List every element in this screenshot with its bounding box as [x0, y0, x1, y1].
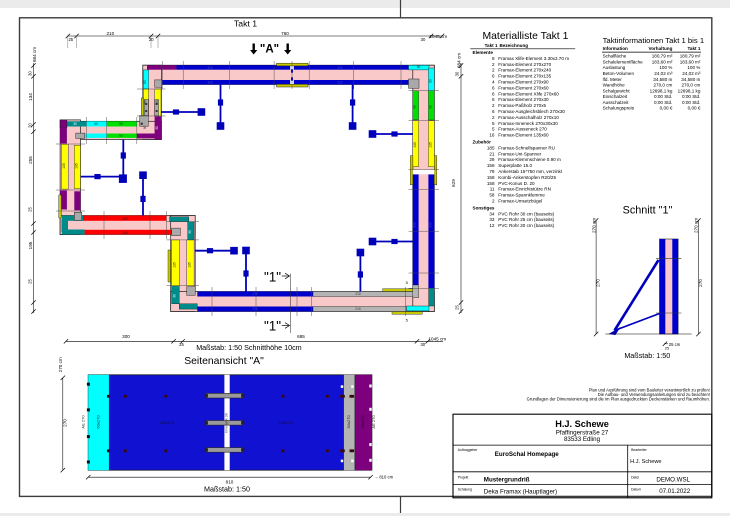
svg-text:180,79 m²: 180,79 m²	[652, 54, 673, 59]
svg-text:185: 185	[487, 145, 495, 150]
svg-text:684 cm: 684 cm	[456, 53, 461, 68]
svg-text:5: 5	[492, 127, 495, 132]
svg-text:30: 30	[454, 71, 459, 76]
svg-text:Framax-Element 135x60: Framax-Element 135x60	[498, 133, 549, 138]
svg-text:Framax-Element 270x60: Framax-Element 270x60	[498, 85, 549, 90]
svg-text:25: 25	[665, 347, 669, 351]
svg-text:→ 810 cm: → 810 cm	[374, 475, 394, 480]
svg-text:30x270: 30x270	[346, 415, 351, 429]
svg-text:2: 2	[492, 103, 495, 108]
svg-text:6: 6	[492, 109, 495, 114]
svg-text:300: 300	[122, 334, 130, 339]
svg-text:0:00 Std.: 0:00 Std.	[682, 100, 700, 105]
svg-text:270,0 cm: 270,0 cm	[681, 83, 700, 88]
svg-text:Datum: Datum	[631, 487, 641, 491]
svg-text:Ausschalzeit: Ausschalzeit	[603, 100, 630, 105]
svg-text:330: 330	[428, 222, 432, 228]
svg-text:Framax-Element Xlife 270x60: Framax-Element Xlife 270x60	[498, 91, 559, 96]
svg-text:29: 29	[489, 157, 495, 162]
svg-text:25: 25	[28, 207, 33, 212]
svg-text:183,60 m²: 183,60 m²	[680, 60, 701, 65]
svg-text:90x270: 90x270	[360, 415, 365, 429]
svg-text:60x270: 60x270	[96, 415, 101, 429]
svg-text:Wandhöhe: Wandhöhe	[603, 83, 625, 88]
svg-text:"A": "A"	[260, 44, 279, 56]
svg-text:34: 34	[489, 211, 495, 216]
svg-text:Framax-Einrichtstütze RN: Framax-Einrichtstütze RN	[498, 187, 551, 192]
svg-text:25: 25	[68, 37, 73, 42]
svg-text:270 cm: 270 cm	[694, 218, 699, 233]
svg-text:Schnitt "1": Schnitt "1"	[623, 205, 673, 217]
svg-text:6: 6	[492, 74, 495, 79]
svg-text:Schalelementfläche: Schalelementfläche	[603, 60, 644, 65]
svg-text:90: 90	[143, 100, 147, 104]
svg-text:12698,1 kg: 12698,1 kg	[678, 88, 701, 93]
svg-text:34,580 m: 34,580 m	[681, 77, 700, 82]
svg-text:135: 135	[413, 142, 417, 148]
svg-text:20: 20	[149, 37, 154, 42]
svg-text:1045 cm: 1045 cm	[429, 337, 447, 342]
svg-text:330: 330	[207, 81, 213, 85]
svg-text:760: 760	[281, 31, 289, 36]
svg-text:Maßstab: 1:50: Maßstab: 1:50	[204, 485, 250, 494]
svg-text:Grundlagen der Dimensionierung: Grundlagen der Dimensionierung sind die …	[527, 397, 710, 402]
svg-text:330: 330	[337, 81, 343, 85]
svg-text:24,02 m³: 24,02 m³	[654, 71, 673, 76]
svg-text:Seitenansicht "A": Seitenansicht "A"	[184, 356, 264, 367]
svg-text:24,02 m³: 24,02 m³	[682, 71, 701, 76]
svg-text:Mustergrundriß: Mustergrundriß	[484, 476, 530, 483]
svg-text:Maßstab: 1:50: Maßstab: 1:50	[624, 351, 670, 360]
svg-text:0:00 Std.: 0:00 Std.	[654, 100, 672, 105]
svg-text:270: 270	[596, 279, 601, 287]
svg-text:6: 6	[492, 91, 495, 96]
svg-text:H.J. Schewe: H.J. Schewe	[555, 419, 609, 429]
svg-text:20: 20	[28, 123, 33, 128]
svg-text:Auslastung: Auslastung	[603, 65, 626, 70]
svg-text:Takt 1: Takt 1	[234, 19, 257, 29]
svg-text:83533 Edling: 83533 Edling	[564, 436, 601, 443]
svg-text:30: 30	[420, 342, 425, 347]
svg-text:PVC-Konus D. 20: PVC-Konus D. 20	[498, 181, 535, 186]
svg-text:AE 270: AE 270	[81, 415, 86, 429]
svg-text:135x270: 135x270	[278, 420, 294, 425]
svg-text:90: 90	[119, 134, 123, 138]
svg-text:270,0 cm: 270,0 cm	[653, 83, 672, 88]
svg-text:210: 210	[355, 292, 361, 296]
svg-text:Framax-Element 270x270: Framax-Element 270x270	[498, 62, 551, 67]
svg-text:25: 25	[179, 342, 184, 347]
svg-text:Materialliste Takt 1: Materialliste Takt 1	[483, 31, 569, 42]
svg-text:135: 135	[173, 262, 177, 268]
svg-text:135: 135	[429, 142, 433, 148]
svg-text:H.J. Schewe: H.J. Schewe	[630, 459, 661, 465]
svg-text:270: 270	[698, 279, 703, 287]
svg-text:30: 30	[188, 230, 192, 234]
svg-text:135: 135	[188, 262, 192, 268]
svg-text:270 cm: 270 cm	[58, 357, 63, 372]
svg-text:lfd. Meter: lfd. Meter	[603, 77, 623, 82]
svg-text:30: 30	[155, 126, 159, 130]
svg-text:90: 90	[428, 105, 432, 109]
svg-text:8: 8	[492, 56, 495, 61]
svg-text:Projekt: Projekt	[458, 476, 469, 480]
svg-text:Schalgewicht: Schalgewicht	[603, 88, 631, 93]
svg-text:Inneneck 30: Inneneck 30	[224, 413, 228, 433]
svg-text:Elemente: Elemente	[473, 50, 494, 55]
svg-text:25: 25	[454, 305, 459, 310]
svg-text:PVC Rohr 20 cm (bauseits): PVC Rohr 20 cm (bauseits)	[498, 223, 554, 228]
svg-text:AE 270: AE 270	[371, 415, 376, 429]
svg-text:PVC Rohr 30 cm (bauseits): PVC Rohr 30 cm (bauseits)	[498, 211, 554, 216]
svg-text:255: 255	[28, 156, 33, 164]
svg-text:240: 240	[122, 231, 128, 235]
svg-text:Framax-Ausseneck 270: Framax-Ausseneck 270	[498, 127, 547, 132]
svg-text:240: 240	[122, 217, 128, 221]
svg-text:Takt 1: Takt 1	[687, 46, 700, 51]
svg-text:Schalungspreis: Schalungspreis	[603, 106, 635, 111]
svg-text:60: 60	[94, 122, 98, 126]
svg-text:2: 2	[492, 115, 495, 120]
svg-text:Framax-Element 270x135: Framax-Element 270x135	[498, 74, 551, 79]
svg-text:210: 210	[355, 307, 361, 311]
svg-text:Information: Information	[603, 46, 628, 51]
svg-text:07.01.2022: 07.01.2022	[659, 488, 691, 495]
svg-text:0:00 Std.: 0:00 Std.	[682, 94, 700, 99]
svg-text:Auftraggeber: Auftraggeber	[458, 448, 478, 452]
svg-text:Framax-Ausgleichsblech 270x30: Framax-Ausgleichsblech 270x30	[498, 109, 565, 114]
svg-text:30: 30	[73, 122, 77, 126]
svg-text:0,00 €: 0,00 €	[688, 106, 701, 111]
svg-text:Schalung: Schalung	[458, 487, 472, 491]
svg-text:30: 30	[421, 37, 426, 42]
svg-text:330: 330	[337, 66, 343, 70]
svg-text:Vorhaltung: Vorhaltung	[648, 46, 672, 51]
svg-text:90: 90	[119, 122, 123, 126]
svg-text:DEMO.WSL: DEMO.WSL	[656, 477, 690, 484]
svg-text:34,580 m: 34,580 m	[653, 77, 672, 82]
svg-text:25: 25	[28, 279, 33, 284]
svg-text:6: 6	[492, 85, 495, 90]
svg-text:4: 4	[492, 80, 495, 85]
svg-text:Bezeichnung: Bezeichnung	[500, 43, 529, 48]
svg-text:158: 158	[487, 175, 495, 180]
svg-text:2: 2	[492, 68, 495, 73]
svg-text:90: 90	[413, 105, 417, 109]
svg-text:EuroSchal Homepage: EuroSchal Homepage	[495, 451, 560, 458]
svg-text:30: 30	[28, 71, 33, 76]
svg-text:60: 60	[143, 80, 147, 84]
svg-text:0:00 Std.: 0:00 Std.	[654, 94, 672, 99]
svg-text:2: 2	[492, 62, 495, 67]
svg-text:Datei: Datei	[631, 476, 639, 480]
svg-text:Framax-Spannklemme: Framax-Spannklemme	[498, 193, 545, 198]
svg-text:685: 685	[297, 334, 305, 339]
svg-text:Beton-Volumen: Beton-Volumen	[603, 71, 635, 76]
svg-text:16: 16	[489, 133, 495, 138]
svg-text:58: 58	[489, 193, 495, 198]
svg-text:Framax-Uni-Spanner: Framax-Uni-Spanner	[498, 151, 541, 156]
svg-text:180,79 m²: 180,79 m²	[680, 54, 701, 59]
svg-text:Framax-Element 270x240: Framax-Element 270x240	[498, 68, 551, 73]
svg-text:Framax-Element 270x30: Framax-Element 270x30	[498, 97, 549, 102]
svg-text:Maßstab: 1:50 Schnitthöhe 10: Maßstab: 1:50 Schnitthöhe 10cm	[196, 343, 301, 352]
svg-text:11: 11	[490, 187, 495, 192]
svg-text:21: 21	[489, 151, 495, 156]
svg-text:Framax-Paßholz 270x5: Framax-Paßholz 270x5	[498, 103, 546, 108]
svg-text:Framax-Ausschalholz 270x10: Framax-Ausschalholz 270x10	[498, 115, 559, 120]
svg-text:Ankerstab 15*750 mm, verzinkt: Ankerstab 15*750 mm, verzinkt	[498, 169, 563, 174]
svg-text:100 %: 100 %	[687, 65, 700, 70]
svg-text:90: 90	[155, 100, 159, 104]
svg-text:Framax-Umsetzbügel: Framax-Umsetzbügel	[498, 199, 542, 204]
svg-text:270 cm: 270 cm	[591, 218, 596, 233]
svg-text:12698,1 kg: 12698,1 kg	[650, 88, 673, 93]
svg-text:25 cm: 25 cm	[669, 342, 681, 347]
svg-text:Einschalzeit: Einschalzeit	[603, 94, 628, 99]
svg-text:30: 30	[173, 294, 177, 298]
svg-text:33: 33	[489, 217, 495, 222]
svg-text:Taktinformationen Takt 1 bis: Taktinformationen Takt 1 bis 1	[603, 36, 705, 45]
svg-text:100 %: 100 %	[659, 65, 672, 70]
svg-text:Framax-Schnellspanner RU: Framax-Schnellspanner RU	[498, 145, 555, 150]
svg-text:270: 270	[252, 307, 258, 311]
svg-text:Schalfläche: Schalfläche	[603, 54, 627, 59]
svg-text:12: 12	[489, 223, 495, 228]
svg-text:Takt 1: Takt 1	[485, 43, 498, 48]
svg-text:60: 60	[417, 65, 421, 69]
svg-text:60: 60	[428, 79, 432, 83]
svg-text:183,60 m²: 183,60 m²	[652, 60, 673, 65]
svg-text:1045 cm: 1045 cm	[430, 34, 448, 39]
svg-text:0,00 €: 0,00 €	[660, 106, 673, 111]
svg-text:Kombi-Ankerstopfen R20/25: Kombi-Ankerstopfen R20/25	[498, 175, 556, 180]
svg-text:90: 90	[143, 126, 147, 130]
svg-text:135: 135	[74, 163, 78, 169]
svg-text:158: 158	[487, 163, 495, 168]
svg-text:158: 158	[487, 181, 495, 186]
svg-text:Superplatte 15.0: Superplatte 15.0	[498, 163, 532, 168]
svg-text:135x270: 135x270	[159, 420, 175, 425]
svg-text:PVC Rohr 25 cm (bauseits): PVC Rohr 25 cm (bauseits)	[498, 217, 554, 222]
svg-text:Sonstiges: Sonstiges	[473, 205, 495, 210]
svg-text:Deka Framax (Hauptlager): Deka Framax (Hauptlager)	[484, 489, 557, 496]
svg-text:2: 2	[492, 199, 495, 204]
svg-text:330: 330	[207, 66, 213, 70]
svg-text:"1": "1"	[264, 270, 281, 285]
svg-text:210: 210	[106, 31, 114, 36]
svg-text:"1": "1"	[264, 318, 281, 333]
svg-text:195: 195	[28, 241, 33, 249]
svg-text:330: 330	[413, 222, 417, 228]
svg-text:Framax-Klemmschiene 0.90 m: Framax-Klemmschiene 0.90 m	[498, 157, 561, 162]
svg-text:79: 79	[489, 169, 495, 174]
svg-text:Bearbeiter: Bearbeiter	[631, 448, 648, 452]
svg-text:Framax-Element 270x90: Framax-Element 270x90	[498, 80, 549, 85]
svg-text:270: 270	[63, 419, 68, 427]
svg-text:684 cm: 684 cm	[32, 47, 37, 62]
svg-text:629: 629	[451, 179, 456, 187]
svg-text:270: 270	[252, 292, 258, 296]
svg-text:5: 5	[492, 121, 495, 126]
svg-text:135: 135	[62, 163, 66, 169]
svg-text:Framax-Inneneck 270x30x30: Framax-Inneneck 270x30x30	[498, 121, 558, 126]
svg-text:Framax Xlife-Element 3.30x2.70: Framax Xlife-Element 3.30x2.70 m	[498, 56, 569, 61]
svg-text:6: 6	[492, 97, 495, 102]
svg-text:Zubehör: Zubehör	[473, 140, 492, 145]
svg-text:134: 134	[28, 93, 33, 101]
